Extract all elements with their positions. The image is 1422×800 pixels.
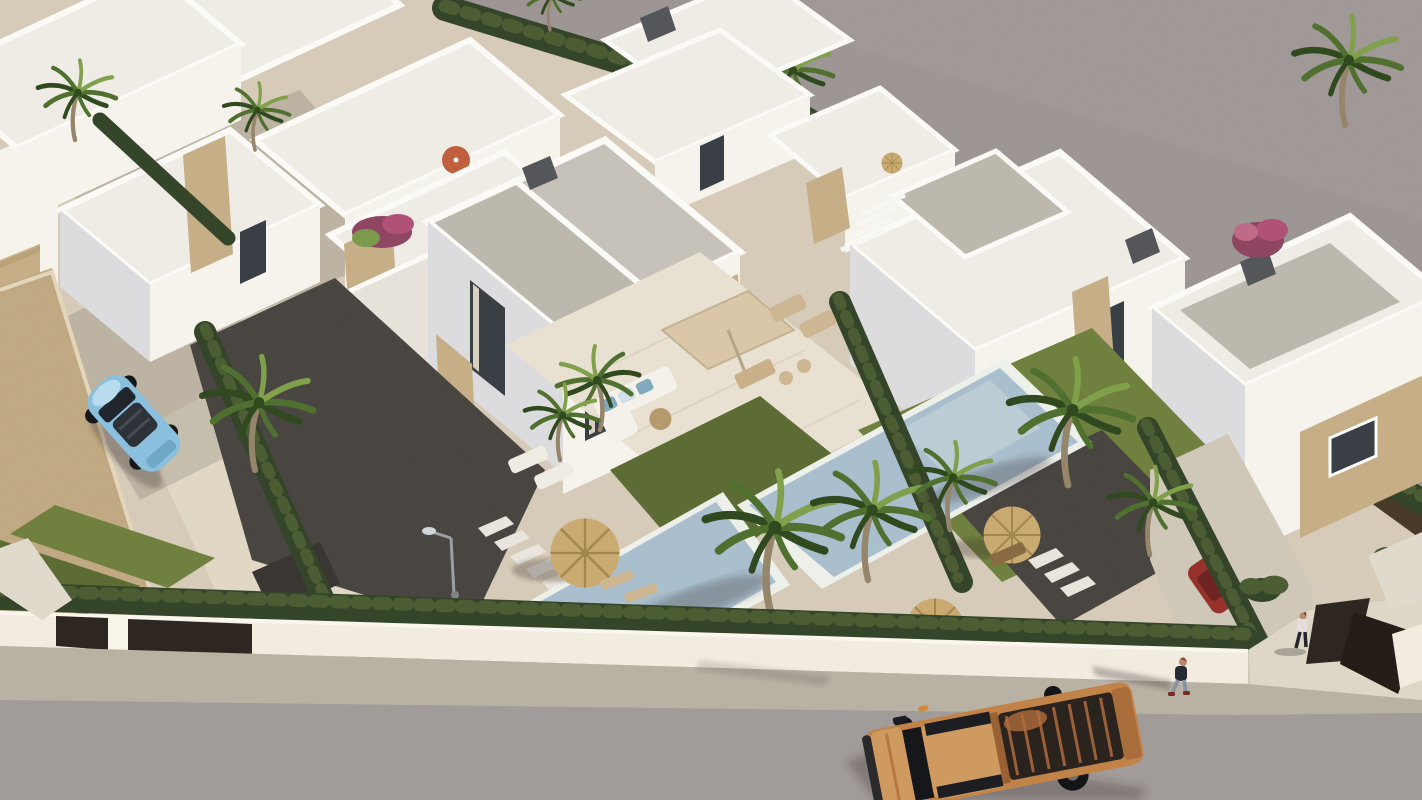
aerial-render-image: Aerial 3D architectural render of a whit… [0,0,1422,800]
render-canvas: Aerial 3D architectural render of a whit… [0,0,1422,800]
asphalt-street [0,700,1422,800]
straw-parasol-small [882,153,903,174]
parasol-pole [454,158,459,163]
